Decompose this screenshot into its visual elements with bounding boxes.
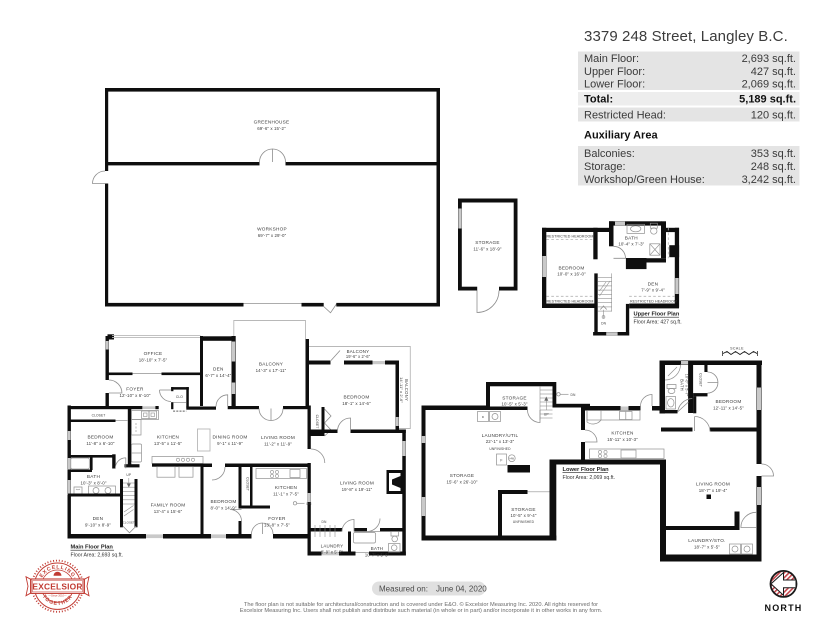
svg-text:18'-10" x 7'-5": 18'-10" x 7'-5" [139, 358, 168, 363]
svg-text:8'-9" x 5'-5": 8'-9" x 5'-5" [321, 549, 343, 554]
svg-text:Auxiliary Area: Auxiliary Area [584, 130, 658, 142]
svg-text:FAMILY ROOM: FAMILY ROOM [151, 502, 186, 507]
svg-text:HW: HW [510, 457, 515, 461]
svg-text:5,189 sq.ft.: 5,189 sq.ft. [739, 94, 796, 106]
svg-text:427 sq.ft.: 427 sq.ft. [751, 66, 796, 78]
svg-text:3379 248 Street, Langley B.C.: 3379 248 Street, Langley B.C. [584, 28, 788, 45]
svg-text:BEDROOM: BEDROOM [88, 434, 114, 439]
svg-text:CLO: CLO [176, 395, 183, 399]
svg-text:Floor Area: 427 sq.ft.: Floor Area: 427 sq.ft. [634, 319, 682, 325]
svg-text:14'-3" x 17'-11": 14'-3" x 17'-11" [256, 368, 287, 373]
svg-text:UP: UP [126, 473, 131, 477]
svg-text:KITCHEN: KITCHEN [275, 485, 297, 490]
svg-text:FOYER: FOYER [126, 386, 144, 391]
svg-text:LIVING ROOM: LIVING ROOM [340, 480, 374, 485]
svg-text:RESTRICTED HEADROOM: RESTRICTED HEADROOM [630, 300, 677, 304]
svg-text:Restricted Head:: Restricted Head: [584, 110, 666, 122]
svg-text:DINING ROOM: DINING ROOM [212, 434, 247, 439]
svg-text:BATH: BATH [679, 379, 684, 391]
svg-text:8'-0" x 14'-9": 8'-0" x 14'-9" [211, 505, 237, 510]
svg-text:UNFINISHED: UNFINISHED [489, 447, 511, 451]
svg-text:SCALE: SCALE [730, 347, 744, 351]
svg-text:BEDROOM: BEDROOM [716, 399, 742, 404]
svg-text:DEN: DEN [648, 281, 659, 286]
svg-text:Main Floor:: Main Floor: [584, 53, 639, 65]
svg-text:STORAGE: STORAGE [475, 240, 500, 245]
svg-text:13'-4" x 15'-6": 13'-4" x 15'-6" [154, 509, 183, 514]
svg-text:19'-6" x 2'-6": 19'-6" x 2'-6" [346, 354, 371, 359]
svg-text:2,069 sq.ft.: 2,069 sq.ft. [742, 79, 796, 91]
svg-text:Total:: Total: [584, 94, 613, 106]
svg-text:10'-5" x 9'-4": 10'-5" x 9'-4" [511, 513, 537, 518]
svg-text:69'-6" x 15'-2": 69'-6" x 15'-2" [257, 126, 286, 131]
svg-text:OFFICE: OFFICE [144, 351, 163, 356]
svg-text:BEDROOM: BEDROOM [344, 394, 370, 399]
svg-text:BATH: BATH [371, 546, 383, 551]
svg-text:18'-7" x 19'-4": 18'-7" x 19'-4" [699, 488, 728, 493]
svg-text:Floor Area: 2,693 sq.ft.: Floor Area: 2,693 sq.ft. [71, 553, 123, 559]
svg-text:D: D [482, 415, 485, 419]
svg-text:Workshop/Green House:: Workshop/Green House: [584, 174, 705, 186]
svg-text:2,693 sq.ft.: 2,693 sq.ft. [742, 53, 796, 65]
svg-text:RESTRICTED HEADROOM: RESTRICTED HEADROOM [546, 234, 593, 238]
svg-text:BATH: BATH [87, 474, 100, 479]
svg-text:3,242 sq.ft.: 3,242 sq.ft. [742, 174, 796, 186]
svg-text:7'-9" x 9'-4": 7'-9" x 9'-4" [641, 288, 665, 293]
svg-text:DEN: DEN [213, 367, 224, 372]
svg-text:10'-3" x 8'-0": 10'-3" x 8'-0" [81, 480, 107, 485]
svg-text:KITCHEN: KITCHEN [611, 430, 633, 435]
svg-text:—Since 2010—: —Since 2010— [48, 593, 67, 597]
svg-text:CLOSET: CLOSET [123, 521, 135, 525]
svg-text:19'-8" x 19'-11": 19'-8" x 19'-11" [342, 487, 373, 492]
svg-text:18'-1" x 14'-6": 18'-1" x 14'-6" [342, 401, 371, 406]
svg-text:Balconies:: Balconies: [584, 148, 635, 160]
svg-text:BALCONY: BALCONY [259, 361, 284, 366]
svg-text:UP: UP [544, 413, 549, 417]
svg-text:DN: DN [307, 502, 312, 506]
svg-text:RESTRICTED HEADROOM: RESTRICTED HEADROOM [546, 300, 593, 304]
svg-text:FOYER: FOYER [268, 516, 286, 521]
svg-text:10'-0" x 5'-7": 10'-0" x 5'-7" [684, 374, 688, 397]
svg-text:18'-7" x 5'-5": 18'-7" x 5'-5" [694, 544, 720, 549]
svg-text:GREENHOUSE: GREENHOUSE [254, 120, 290, 125]
svg-text:DN: DN [322, 520, 327, 524]
svg-text:DN: DN [571, 393, 576, 397]
svg-text:STORAGE: STORAGE [450, 473, 475, 478]
svg-text:KITCHEN: KITCHEN [157, 434, 179, 439]
svg-text:Measured on:: Measured on: [379, 585, 428, 594]
svg-text:LAUNDRY/UTIL: LAUNDRY/UTIL [482, 433, 519, 438]
svg-text:Excelsior Measuring Inc. Users: Excelsior Measuring Inc. Users shall not… [240, 608, 603, 614]
svg-text:Floor Area: 2,069 sq.ft.: Floor Area: 2,069 sq.ft. [563, 475, 615, 481]
svg-text:13'-5" x 11'-5": 13'-5" x 11'-5" [154, 441, 183, 446]
svg-text:UNFINISHED: UNFINISHED [513, 520, 535, 524]
svg-text:6'-7" x 14'-4": 6'-7" x 14'-4" [205, 373, 231, 378]
svg-text:353 sq.ft.: 353 sq.ft. [751, 148, 796, 160]
svg-text:F: F [500, 459, 502, 463]
svg-text:LIVING ROOM: LIVING ROOM [261, 435, 295, 440]
svg-text:10'-0" x 16'-0": 10'-0" x 16'-0" [557, 272, 586, 277]
svg-text:13'-8" x 7'-5": 13'-8" x 7'-5" [264, 522, 290, 527]
svg-text:DEN: DEN [93, 516, 104, 521]
svg-text:11'-6" x 18'-9": 11'-6" x 18'-9" [473, 247, 502, 252]
svg-text:Lower Floor:: Lower Floor: [584, 79, 645, 91]
svg-text:CLOSET: CLOSET [699, 373, 703, 387]
svg-text:BEDROOM: BEDROOM [211, 499, 237, 504]
svg-text:Main Floor Plan: Main Floor Plan [71, 545, 114, 551]
svg-text:9'-10" x 8'-9": 9'-10" x 8'-9" [85, 522, 111, 527]
svg-text:STORAGE: STORAGE [502, 395, 527, 400]
svg-text:11'-8" x 6'-10": 11'-8" x 6'-10" [86, 441, 115, 446]
svg-text:BALCONY: BALCONY [347, 349, 370, 354]
svg-text:LAUNDRY/STO.: LAUNDRY/STO. [688, 538, 725, 543]
svg-text:NORTH: NORTH [765, 603, 803, 613]
svg-text:12'-10" x 6'-10": 12'-10" x 6'-10" [119, 393, 150, 398]
svg-text:9'-1" x 11'-9": 9'-1" x 11'-9" [217, 441, 243, 446]
svg-text:248 sq.ft.: 248 sq.ft. [751, 161, 796, 173]
svg-text:EXCELSIOR: EXCELSIOR [32, 582, 82, 592]
svg-text:DN: DN [601, 322, 606, 326]
svg-text:10'-5" x 5'-3": 10'-5" x 5'-3" [502, 402, 528, 407]
svg-text:STORAGE: STORAGE [511, 507, 536, 512]
svg-text:CLOSET: CLOSET [92, 414, 106, 418]
svg-text:120 sq.ft.: 120 sq.ft. [751, 110, 796, 122]
svg-text:11'-1" x 7'-5": 11'-1" x 7'-5" [273, 491, 299, 496]
svg-text:Upper Floor Plan: Upper Floor Plan [634, 312, 680, 318]
svg-text:69'-7" x 29'-0": 69'-7" x 29'-0" [258, 233, 287, 238]
svg-text:June 04, 2020: June 04, 2020 [436, 585, 487, 594]
svg-text:WORKSHOP: WORKSHOP [257, 227, 287, 232]
svg-text:CLOSET: CLOSET [246, 477, 250, 491]
svg-text:12'-11" x 14'-5": 12'-11" x 14'-5" [713, 405, 744, 410]
svg-text:Storage:: Storage: [584, 161, 626, 173]
svg-text:14'-11" x 2'-6": 14'-11" x 2'-6" [399, 377, 404, 403]
svg-text:BATH: BATH [625, 236, 638, 241]
svg-text:22'-1" x 13'-3": 22'-1" x 13'-3" [486, 439, 515, 444]
svg-text:LAUNDRY: LAUNDRY [321, 543, 344, 548]
svg-text:LIVING ROOM: LIVING ROOM [696, 481, 730, 486]
svg-text:10'-7" x 5'-5": 10'-7" x 5'-5" [365, 552, 390, 557]
svg-text:The floor plan is not suitable: The floor plan is not suitable for archi… [244, 601, 598, 608]
svg-text:11'-2" x 11'-9": 11'-2" x 11'-9" [264, 441, 292, 446]
svg-text:Upper Floor:: Upper Floor: [584, 66, 645, 78]
svg-text:Lower Floor Plan: Lower Floor Plan [563, 467, 610, 473]
svg-text:CLOSET: CLOSET [315, 415, 319, 429]
svg-text:15'-11" x 10'-3": 15'-11" x 10'-3" [607, 437, 638, 442]
svg-text:15'-6" x 26'-10": 15'-6" x 26'-10" [446, 479, 477, 484]
svg-text:BEDROOM: BEDROOM [559, 265, 585, 270]
svg-text:10'-4" x 7'-3": 10'-4" x 7'-3" [618, 242, 644, 247]
